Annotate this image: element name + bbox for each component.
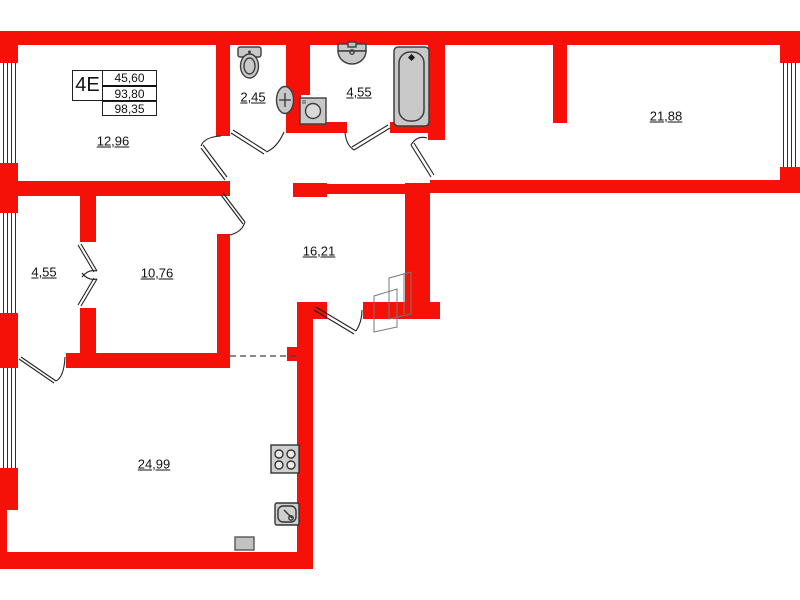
folding-door-closet (78, 244, 97, 306)
unit-area-living: 45,60 (102, 70, 157, 86)
room-area-label-closet: 4,55 (31, 265, 56, 280)
entrance-door-icon (374, 272, 411, 332)
door-swing-room-top-left (201, 136, 227, 180)
wc-sink-icon (277, 87, 294, 114)
room-area-label-top-right: 21,88 (650, 109, 683, 124)
unit-id: 4E (72, 70, 103, 101)
washing-machine-icon (300, 98, 326, 124)
door-swing-entrance (314, 307, 362, 334)
floor-plan: 12,96 2,45 4,55 21,88 4,55 10,76 16,21 2… (0, 0, 800, 600)
door-swing-wc (231, 130, 284, 154)
unit-area-total: 98,35 (102, 101, 157, 116)
window-icon (784, 63, 796, 167)
bathtub-icon (394, 47, 429, 126)
toilet-icon (238, 47, 261, 78)
stove-icon (271, 445, 299, 473)
door-swing-bathroom (345, 125, 390, 150)
unit-info-box: 4E 45,60 93,80 98,35 (72, 70, 157, 116)
window-icon (4, 213, 16, 313)
door-swing-room-top-right (411, 137, 434, 177)
washbasin-icon (338, 42, 366, 64)
door-swing-closet (19, 357, 65, 383)
room-area-label-hallway: 16,21 (303, 244, 336, 259)
room-area-label-middle: 10,76 (141, 266, 174, 281)
door-swing-room-middle (221, 193, 245, 235)
room-area-label-living: 24,99 (138, 457, 171, 472)
room-area-label-bathroom: 4,55 (346, 85, 371, 100)
window-icon (4, 368, 16, 468)
boiler-icon (235, 537, 254, 550)
room-area-label-wc: 2,45 (240, 90, 265, 105)
unit-area-main: 93,80 (102, 85, 157, 102)
kitchen-sink-icon (275, 503, 299, 525)
room-area-label-top-left: 12,96 (97, 134, 130, 149)
window-icon (4, 63, 16, 163)
